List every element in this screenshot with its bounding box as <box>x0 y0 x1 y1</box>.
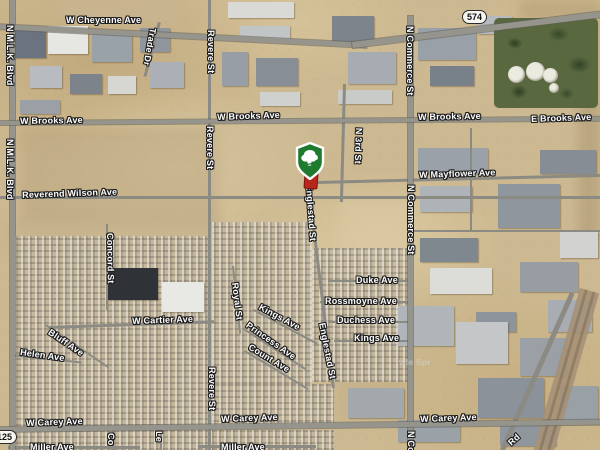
building-block <box>338 90 392 104</box>
building-block <box>10 30 46 58</box>
building-block <box>540 150 596 174</box>
building-block <box>256 58 298 86</box>
label-kings-ave-east: Kings Ave <box>354 333 399 343</box>
building-block <box>430 268 492 294</box>
building-block <box>108 76 136 94</box>
storage-tank <box>526 62 545 81</box>
building-block <box>30 66 62 88</box>
tree-shield-icon <box>294 142 326 180</box>
label-revere-st-south: Revere St <box>207 367 217 410</box>
building-block <box>520 262 578 292</box>
building-block <box>430 66 474 86</box>
label-n-mlk-blvd-south: N M.L.K. Blvd <box>5 139 15 200</box>
building-block <box>420 186 472 212</box>
building-block <box>162 282 204 312</box>
label-w-carey-ave-west: W Carey Ave <box>26 416 83 428</box>
label-faint-place: wle Spr <box>399 357 431 367</box>
storage-tank <box>549 83 559 93</box>
green-shield-marker[interactable] <box>294 142 326 180</box>
building-block <box>456 322 508 364</box>
building-block <box>348 52 396 84</box>
building-block <box>420 238 478 262</box>
label-revere-st-mid: Revere St <box>205 126 215 169</box>
label-n-mlk-blvd-north: N M.L.K. Blvd <box>5 25 15 86</box>
label-rossmoyne-ave: Rossmoyne Ave <box>325 296 397 306</box>
label-street-fragment-east: Le <box>154 431 164 442</box>
road-miller-ave-west <box>8 446 140 449</box>
label-n-commerce-st-mid: N Commerce St <box>406 185 416 255</box>
road-industrial-street <box>470 128 472 232</box>
label-e-brooks-ave: E Brooks Ave <box>531 112 592 124</box>
building-block <box>228 2 294 18</box>
building-block <box>260 92 300 106</box>
building-block <box>332 16 374 42</box>
road-industrial-street <box>410 230 600 232</box>
terrain-patch <box>20 128 220 228</box>
building-block <box>348 388 404 418</box>
terrain-patch <box>215 120 305 200</box>
building-block <box>222 52 248 86</box>
storage-tank <box>508 66 525 83</box>
label-w-brooks-ave-east: W Brooks Ave <box>418 111 481 122</box>
label-miller-ave-east: Miller Ave <box>221 442 265 450</box>
label-duchess-ave: Duchess Ave <box>337 315 395 325</box>
route-badge-574: 574 <box>462 10 487 24</box>
vegetation-area <box>494 18 598 108</box>
label-street-fragment-west: Co <box>106 433 116 446</box>
label-revere-st-north: Revere St <box>206 30 216 73</box>
satellite-map[interactable]: W Cheyenne AveTrade DrN M.L.K. BlvdN M.L… <box>0 0 600 450</box>
label-n-commerce-st-south: N Commerce St <box>406 431 416 450</box>
storage-tank <box>543 68 558 83</box>
building-block <box>560 232 598 258</box>
label-w-cartier-ave: W Cartier Ave <box>132 314 193 326</box>
label-w-cheyenne-ave: W Cheyenne Ave <box>66 15 141 25</box>
label-duke-ave: Duke Ave <box>356 275 398 285</box>
building-block <box>150 62 184 88</box>
label-w-carey-ave-mid: W Carey Ave <box>221 412 278 424</box>
label-w-brooks-ave-west: W Brooks Ave <box>20 115 83 126</box>
building-block <box>92 34 132 62</box>
building-block <box>70 74 102 94</box>
label-n-3rd-st: N 3rd St <box>353 128 364 164</box>
label-n-commerce-st-north: N Commerce St <box>405 26 415 96</box>
label-w-carey-ave-east: W Carey Ave <box>420 412 477 424</box>
label-concord-st: Concord St <box>105 233 116 284</box>
building-block <box>498 184 560 228</box>
building-block <box>20 100 60 114</box>
label-miller-ave-west: Miller Ave <box>30 442 74 450</box>
route-badge-125-partial: 125 <box>0 430 17 444</box>
